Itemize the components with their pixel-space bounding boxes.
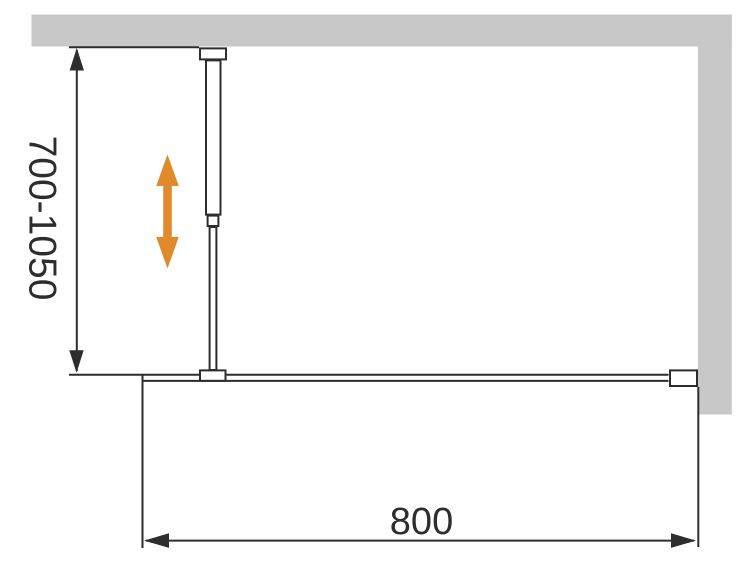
svg-text:700-1050: 700-1050	[21, 136, 64, 301]
svg-text:800: 800	[390, 501, 453, 543]
